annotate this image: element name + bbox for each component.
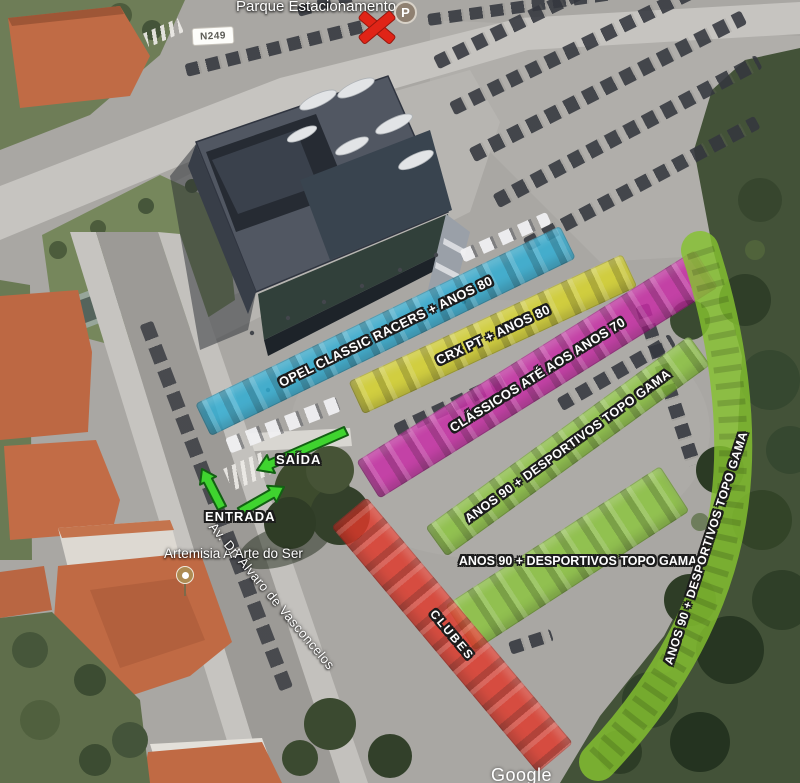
pin-stick xyxy=(184,584,187,596)
satellite-map: OPEL CLASSIC RACERS + ANOS 80 CRX PT + A… xyxy=(0,0,800,783)
poi-pin-icon[interactable] xyxy=(176,566,194,596)
exit-label: SAÍDA xyxy=(276,452,321,467)
pin-head xyxy=(176,566,194,584)
zone-anos90-block-label: ANOS 90 + DESPORTIVOS TOPO GAMA xyxy=(459,554,697,568)
closed-x-icon xyxy=(356,8,398,46)
top-left-house xyxy=(8,6,150,108)
google-watermark: Google xyxy=(491,765,552,783)
road-badge-n249: N249 xyxy=(192,26,235,46)
pin-dot xyxy=(182,572,189,579)
